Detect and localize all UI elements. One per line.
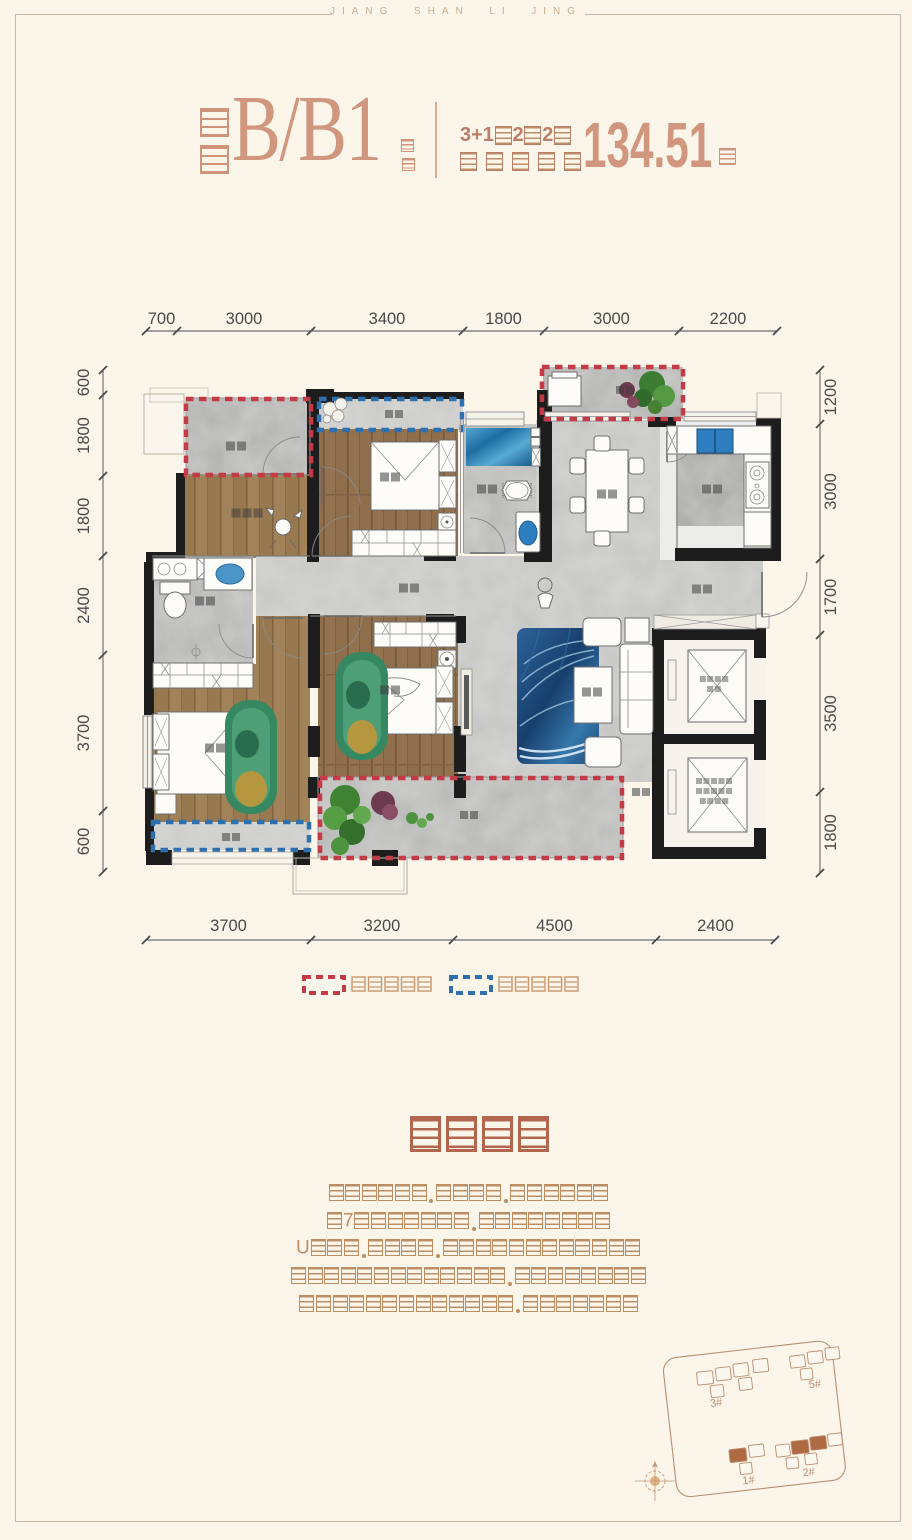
svg-text:3000: 3000 bbox=[822, 473, 840, 510]
svg-text:3200: 3200 bbox=[364, 917, 401, 935]
svg-text:1200: 1200 bbox=[822, 379, 840, 416]
svg-text:2400: 2400 bbox=[697, 917, 734, 935]
svg-text:1800: 1800 bbox=[485, 310, 522, 328]
svg-text:3700: 3700 bbox=[75, 715, 93, 752]
svg-text:700: 700 bbox=[148, 310, 176, 328]
svg-text:3400: 3400 bbox=[369, 310, 406, 328]
svg-text:1700: 1700 bbox=[822, 579, 840, 616]
svg-text:4500: 4500 bbox=[536, 917, 573, 935]
svg-text:2400: 2400 bbox=[75, 587, 93, 624]
svg-text:3#: 3# bbox=[709, 1397, 723, 1410]
svg-text:2200: 2200 bbox=[710, 310, 747, 328]
svg-text:5#: 5# bbox=[808, 1378, 822, 1391]
svg-text:3000: 3000 bbox=[593, 310, 630, 328]
svg-text:2#: 2# bbox=[802, 1466, 816, 1479]
svg-text:1#: 1# bbox=[742, 1474, 756, 1487]
svg-text:3000: 3000 bbox=[226, 310, 263, 328]
svg-text:600: 600 bbox=[75, 828, 93, 856]
svg-text:3500: 3500 bbox=[822, 695, 840, 732]
svg-text:3700: 3700 bbox=[210, 917, 247, 935]
svg-text:1800: 1800 bbox=[822, 814, 840, 851]
svg-text:1800: 1800 bbox=[75, 417, 93, 454]
svg-text:600: 600 bbox=[75, 369, 93, 397]
svg-text:1800: 1800 bbox=[75, 498, 93, 535]
